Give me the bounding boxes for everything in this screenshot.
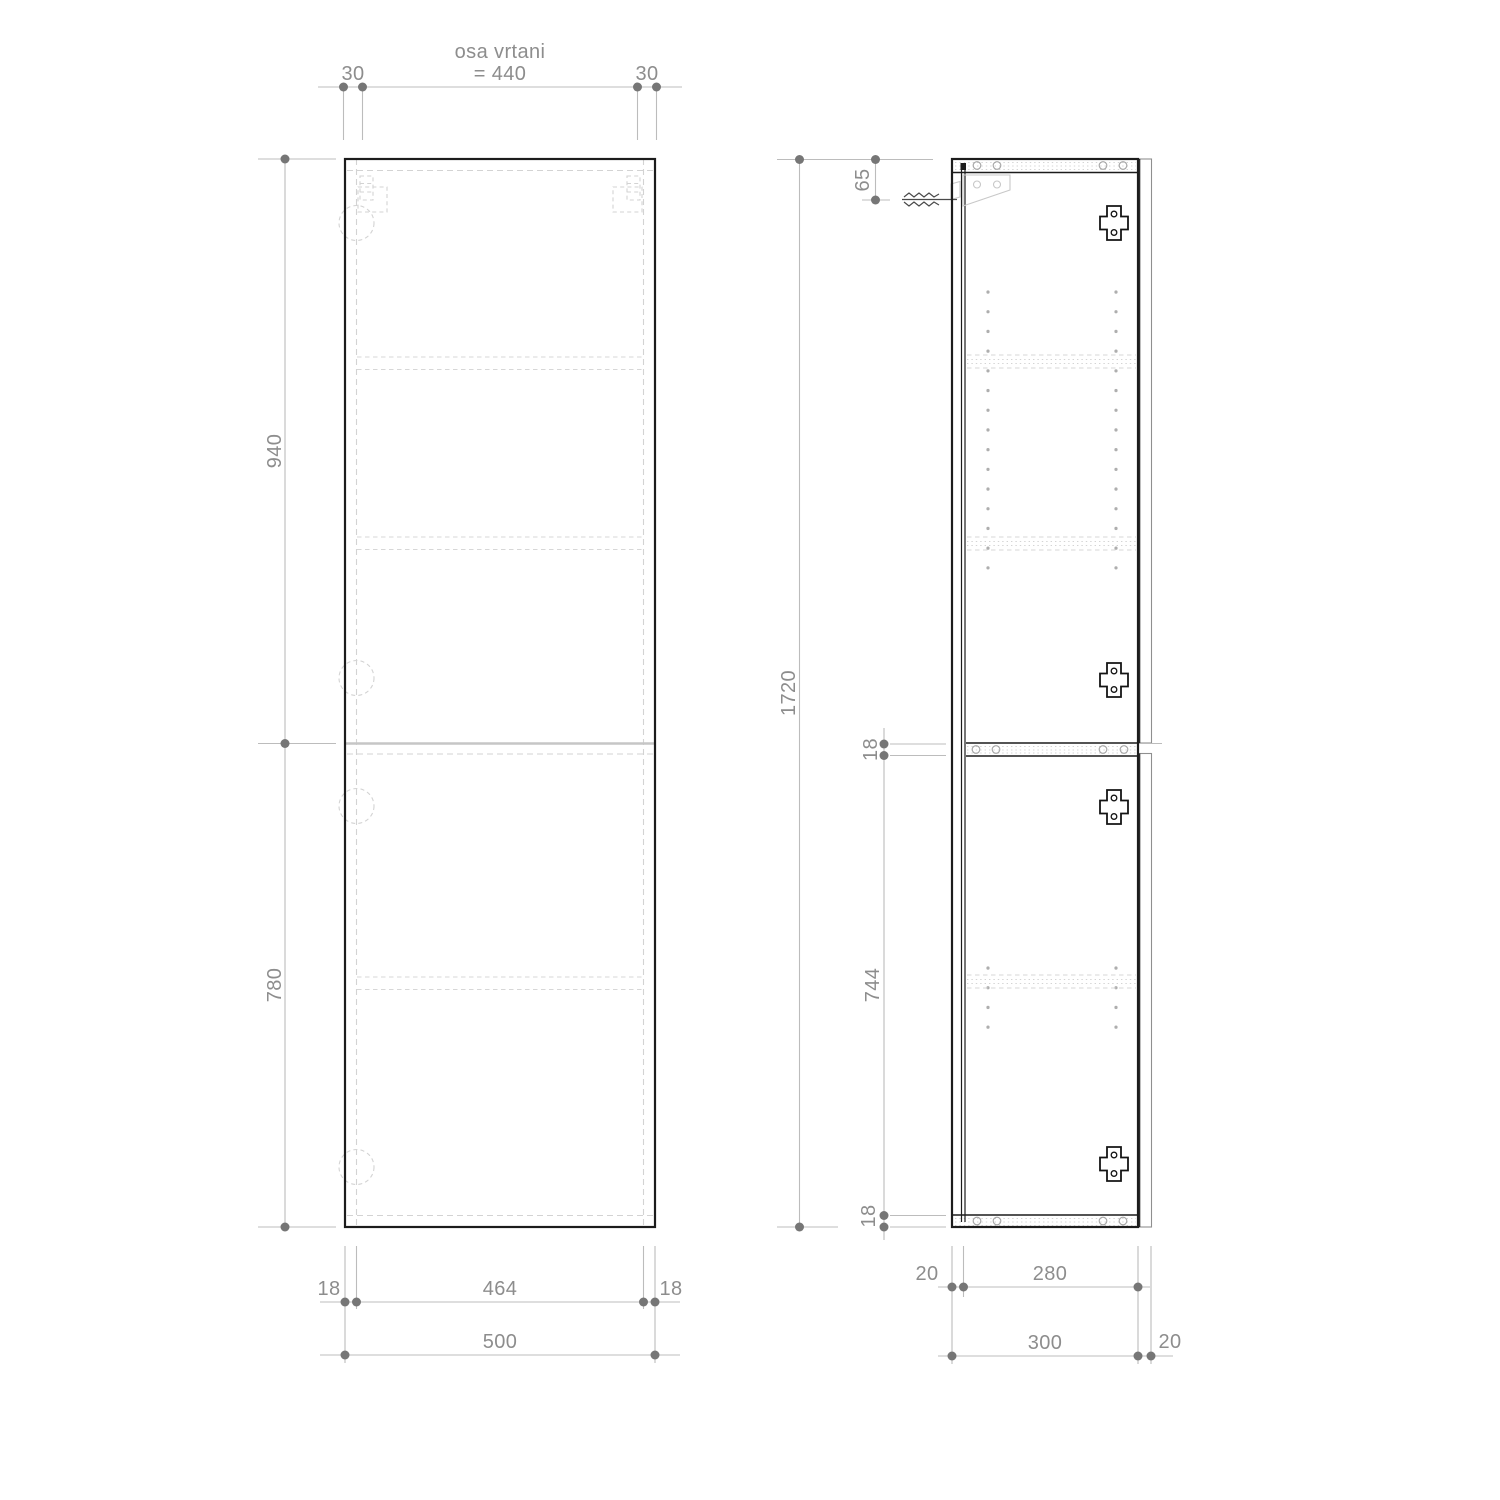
dim-dot bbox=[871, 196, 880, 205]
dim-label-total-height: 1720 bbox=[778, 670, 800, 716]
bottom-panel-section bbox=[953, 1215, 1137, 1226]
dim-label-axis-title: osa vrtani bbox=[455, 41, 546, 63]
dim-dot bbox=[651, 1351, 660, 1360]
side-view bbox=[902, 159, 1162, 1227]
dim-dot bbox=[1147, 1352, 1156, 1361]
dim-dot bbox=[871, 155, 880, 164]
dim-inner-heights: 18 744 18 bbox=[858, 728, 946, 1240]
bracket-hole bbox=[994, 181, 1001, 188]
dim-dot bbox=[651, 1298, 660, 1307]
dim-dot bbox=[880, 1211, 889, 1220]
hinge-plate-drilling-right bbox=[613, 176, 642, 212]
cabinet-front-outline bbox=[345, 159, 655, 1227]
dim-dot bbox=[341, 1351, 350, 1360]
dim-label-offset-left: 30 bbox=[341, 63, 364, 85]
dim-dot bbox=[352, 1298, 361, 1307]
hanger-bracket-icon bbox=[951, 175, 1010, 206]
dim-top-drilling-axis: osa vrtani = 440 30 30 bbox=[318, 41, 682, 140]
top-panel-section bbox=[953, 162, 1137, 173]
dim-label-bottom-thickness: 18 bbox=[858, 1204, 880, 1227]
cabinet-drawing: osa vrtani = 440 30 30 940 780 bbox=[0, 0, 1500, 1500]
dim-dot bbox=[281, 155, 290, 164]
shelf-pin-holes bbox=[988, 292, 1116, 1028]
hinge-cross-icon bbox=[1100, 790, 1128, 824]
hinge-plate-slot bbox=[627, 176, 640, 200]
dim-label-door-thickness: 20 bbox=[1158, 1331, 1181, 1353]
dim-dot bbox=[639, 1298, 648, 1307]
dim-label-inset-right: 18 bbox=[659, 1278, 682, 1300]
shelf-band-2 bbox=[967, 537, 1136, 550]
dim-label-upper-door: 940 bbox=[264, 434, 286, 469]
dim-left-door-heights: 940 780 bbox=[258, 155, 336, 1232]
dim-label-inset-left: 18 bbox=[317, 1278, 340, 1300]
shelf-hidden-edges bbox=[357, 357, 643, 990]
dim-dot bbox=[795, 155, 804, 164]
side-dimensions: 1720 65 18 744 18 bbox=[777, 155, 1182, 1364]
screw-thread-top bbox=[904, 193, 939, 197]
front-view bbox=[339, 159, 655, 1227]
dim-label-lower-door: 780 bbox=[264, 968, 286, 1003]
bracket-hole bbox=[974, 181, 981, 188]
dim-dot bbox=[1134, 1352, 1143, 1361]
dim-dot bbox=[795, 1223, 804, 1232]
divider-panel-section bbox=[966, 743, 1137, 756]
shelf-band-3 bbox=[967, 975, 1136, 988]
back-panel bbox=[961, 163, 967, 1222]
dim-label-axis-value: = 440 bbox=[474, 63, 527, 85]
dim-label-total-width: 500 bbox=[483, 1331, 518, 1353]
dim-bottom-depths: 20 280 300 20 bbox=[915, 1246, 1181, 1364]
dim-dot bbox=[1134, 1283, 1143, 1292]
shelf-band-1 bbox=[967, 355, 1136, 368]
dim-dot bbox=[948, 1283, 957, 1292]
hinge-cross-icon bbox=[1100, 663, 1128, 697]
dim-total-height: 1720 bbox=[777, 155, 933, 1232]
technical-drawing-page: osa vrtani = 440 30 30 940 780 bbox=[0, 0, 1500, 1500]
dim-dot bbox=[281, 1223, 290, 1232]
dim-dot bbox=[948, 1352, 957, 1361]
door-profile bbox=[1138, 159, 1162, 1227]
dim-bottom-widths: 18 464 18 500 bbox=[317, 1246, 682, 1363]
bracket-outline bbox=[963, 175, 1010, 206]
dowel-hole bbox=[993, 1217, 1001, 1225]
hinge-cross-icon bbox=[1100, 1147, 1128, 1181]
dim-label-back-offset: 20 bbox=[915, 1263, 938, 1285]
dim-dot bbox=[281, 739, 290, 748]
lower-door-profile bbox=[1140, 754, 1152, 1228]
dowel-hole bbox=[1099, 1217, 1107, 1225]
hinge-plate-slot bbox=[360, 176, 373, 200]
dim-label-offset-right: 30 bbox=[635, 63, 658, 85]
screw-thread-bottom bbox=[904, 202, 939, 206]
dim-label-hanger-offset: 65 bbox=[852, 168, 874, 191]
dim-hanger-offset: 65 bbox=[852, 155, 890, 205]
dim-label-inner-width: 464 bbox=[483, 1278, 518, 1300]
upper-door-profile bbox=[1140, 159, 1152, 743]
front-dimensions: osa vrtani = 440 30 30 940 780 bbox=[258, 41, 683, 1363]
hinge-cross-icon bbox=[1100, 206, 1128, 240]
dim-dot bbox=[880, 1223, 889, 1232]
dim-label-lower-inner-height: 744 bbox=[862, 968, 884, 1003]
wall-screw-icon bbox=[902, 193, 957, 206]
dim-dot bbox=[959, 1283, 968, 1292]
dim-dot bbox=[341, 1298, 350, 1307]
hinge-cross-icons bbox=[1100, 206, 1128, 1181]
dim-label-divider-thickness: 18 bbox=[860, 738, 882, 761]
dim-label-inner-depth: 280 bbox=[1033, 1263, 1068, 1285]
dim-label-body-depth: 300 bbox=[1028, 1332, 1063, 1354]
